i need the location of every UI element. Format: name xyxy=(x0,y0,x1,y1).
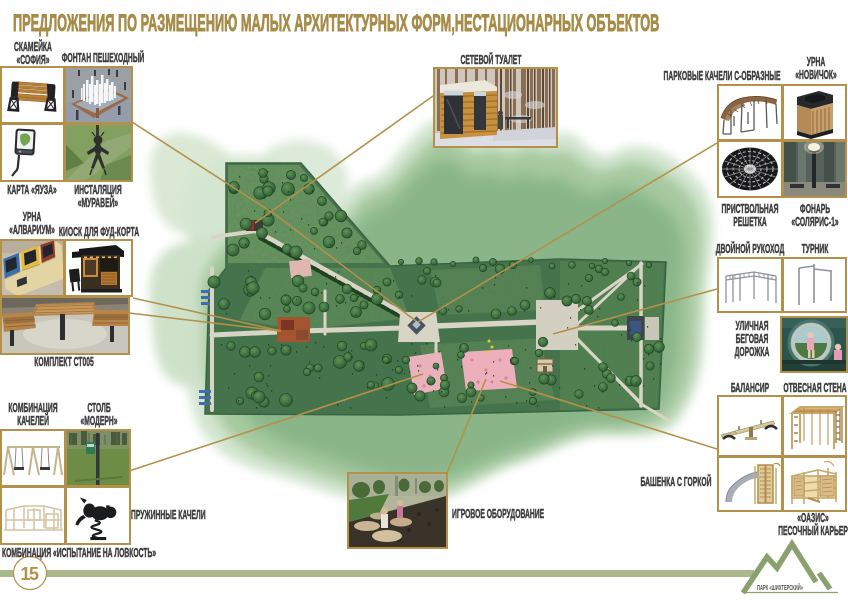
svg-text:15: 15 xyxy=(20,564,39,584)
svg-text:ПАРК «ШИХТЕРСКИЙ»: ПАРК «ШИХТЕРСКИЙ» xyxy=(757,583,803,592)
